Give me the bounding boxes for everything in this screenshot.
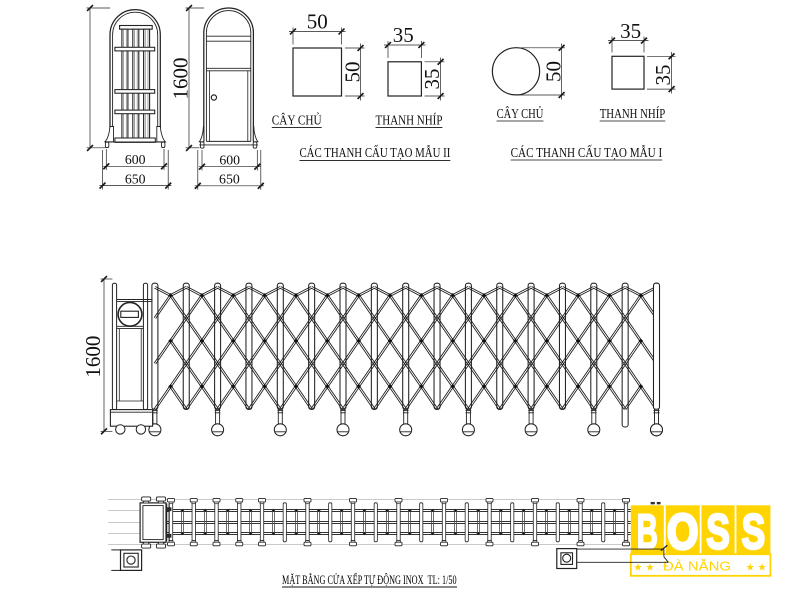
svg-text:THANH NHÍP: THANH NHÍP bbox=[376, 111, 443, 128]
svg-text:ĐÀ NẴNG: ĐÀ NẴNG bbox=[663, 559, 731, 574]
svg-text:50: 50 bbox=[541, 61, 565, 82]
svg-text:600: 600 bbox=[219, 153, 240, 168]
svg-text:CÂY CHỦ: CÂY CHỦ bbox=[497, 105, 544, 122]
svg-text:★: ★ bbox=[646, 563, 655, 574]
svg-text:O: O bbox=[667, 505, 698, 560]
svg-text:35: 35 bbox=[420, 69, 444, 90]
svg-text:600: 600 bbox=[125, 152, 146, 167]
svg-text:S: S bbox=[706, 505, 730, 560]
svg-text:THANH NHÍP: THANH NHÍP bbox=[600, 105, 666, 122]
svg-text:1600: 1600 bbox=[168, 58, 192, 100]
svg-text:35: 35 bbox=[651, 65, 675, 86]
svg-text:50: 50 bbox=[307, 10, 328, 34]
svg-text:MẶT BẰNG CỬA XẾP TỰ ĐỘNG INOX: MẶT BẰNG CỬA XẾP TỰ ĐỘNG INOX TL: 1/50 bbox=[282, 572, 457, 587]
svg-text:50: 50 bbox=[340, 62, 364, 83]
svg-text:CÁC THANH CẤU TẠO MẪU II: CÁC THANH CẤU TẠO MẪU II bbox=[299, 143, 450, 161]
svg-text:S: S bbox=[742, 505, 766, 560]
svg-text:★: ★ bbox=[758, 563, 767, 574]
svg-text:35: 35 bbox=[393, 23, 414, 47]
svg-text:★: ★ bbox=[634, 563, 643, 574]
svg-text:1600: 1600 bbox=[81, 336, 105, 378]
svg-text:B: B bbox=[637, 504, 658, 560]
svg-text:★: ★ bbox=[746, 563, 755, 574]
svg-text:650: 650 bbox=[125, 172, 146, 187]
svg-text:CÂY CHỦ: CÂY CHỦ bbox=[272, 111, 322, 128]
svg-text:650: 650 bbox=[219, 172, 240, 187]
svg-text:CÁC THANH CẤU TẠO MẪU I: CÁC THANH CẤU TẠO MẪU I bbox=[511, 143, 663, 161]
svg-text:35: 35 bbox=[620, 19, 641, 43]
